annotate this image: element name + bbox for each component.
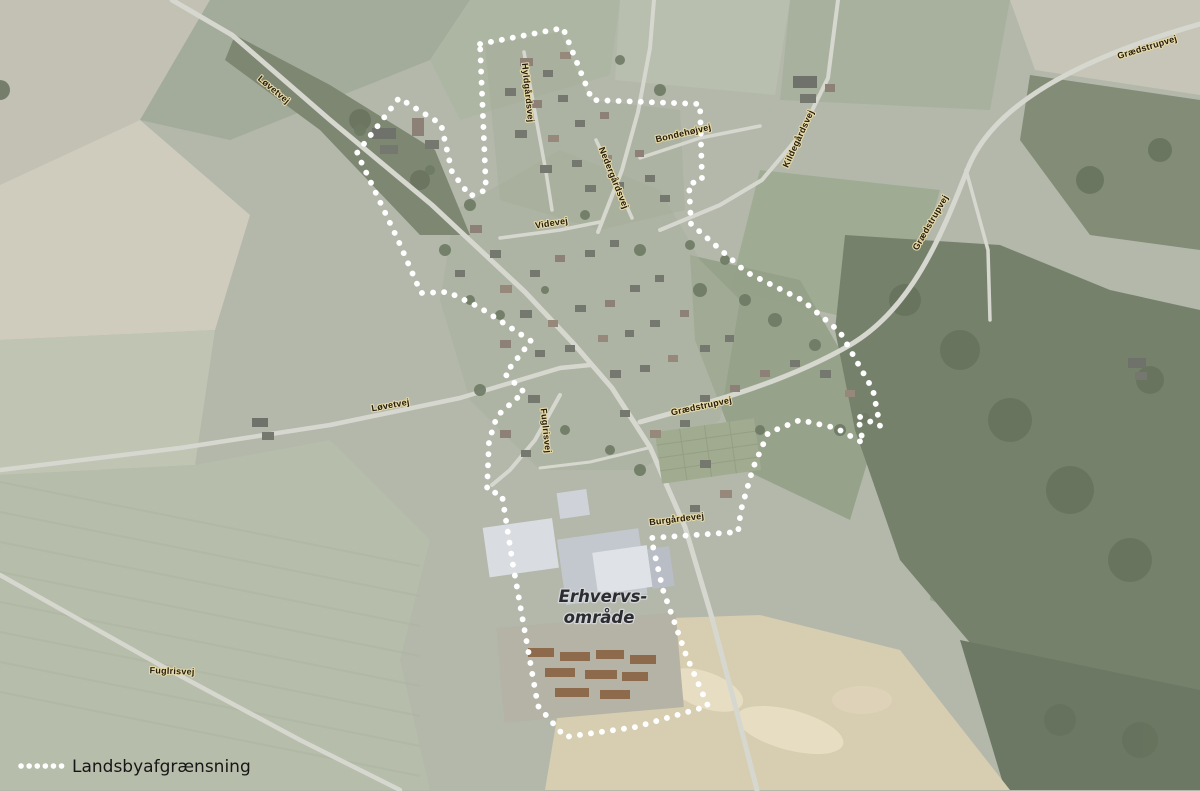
aerial-photo-map: LøvetvejGrædstrupvejHyldgårdsvejNedergår…: [0, 0, 1200, 791]
area-label-line1: Erhvervs-: [559, 587, 648, 606]
road-label: Fuglrisvej: [149, 665, 194, 677]
aerial-map-view: LøvetvejGrædstrupvejHyldgårdsvejNedergår…: [0, 0, 1200, 791]
legend-label: Landsbyafgrænsning: [72, 757, 251, 777]
area-label-line2: område: [564, 608, 635, 627]
